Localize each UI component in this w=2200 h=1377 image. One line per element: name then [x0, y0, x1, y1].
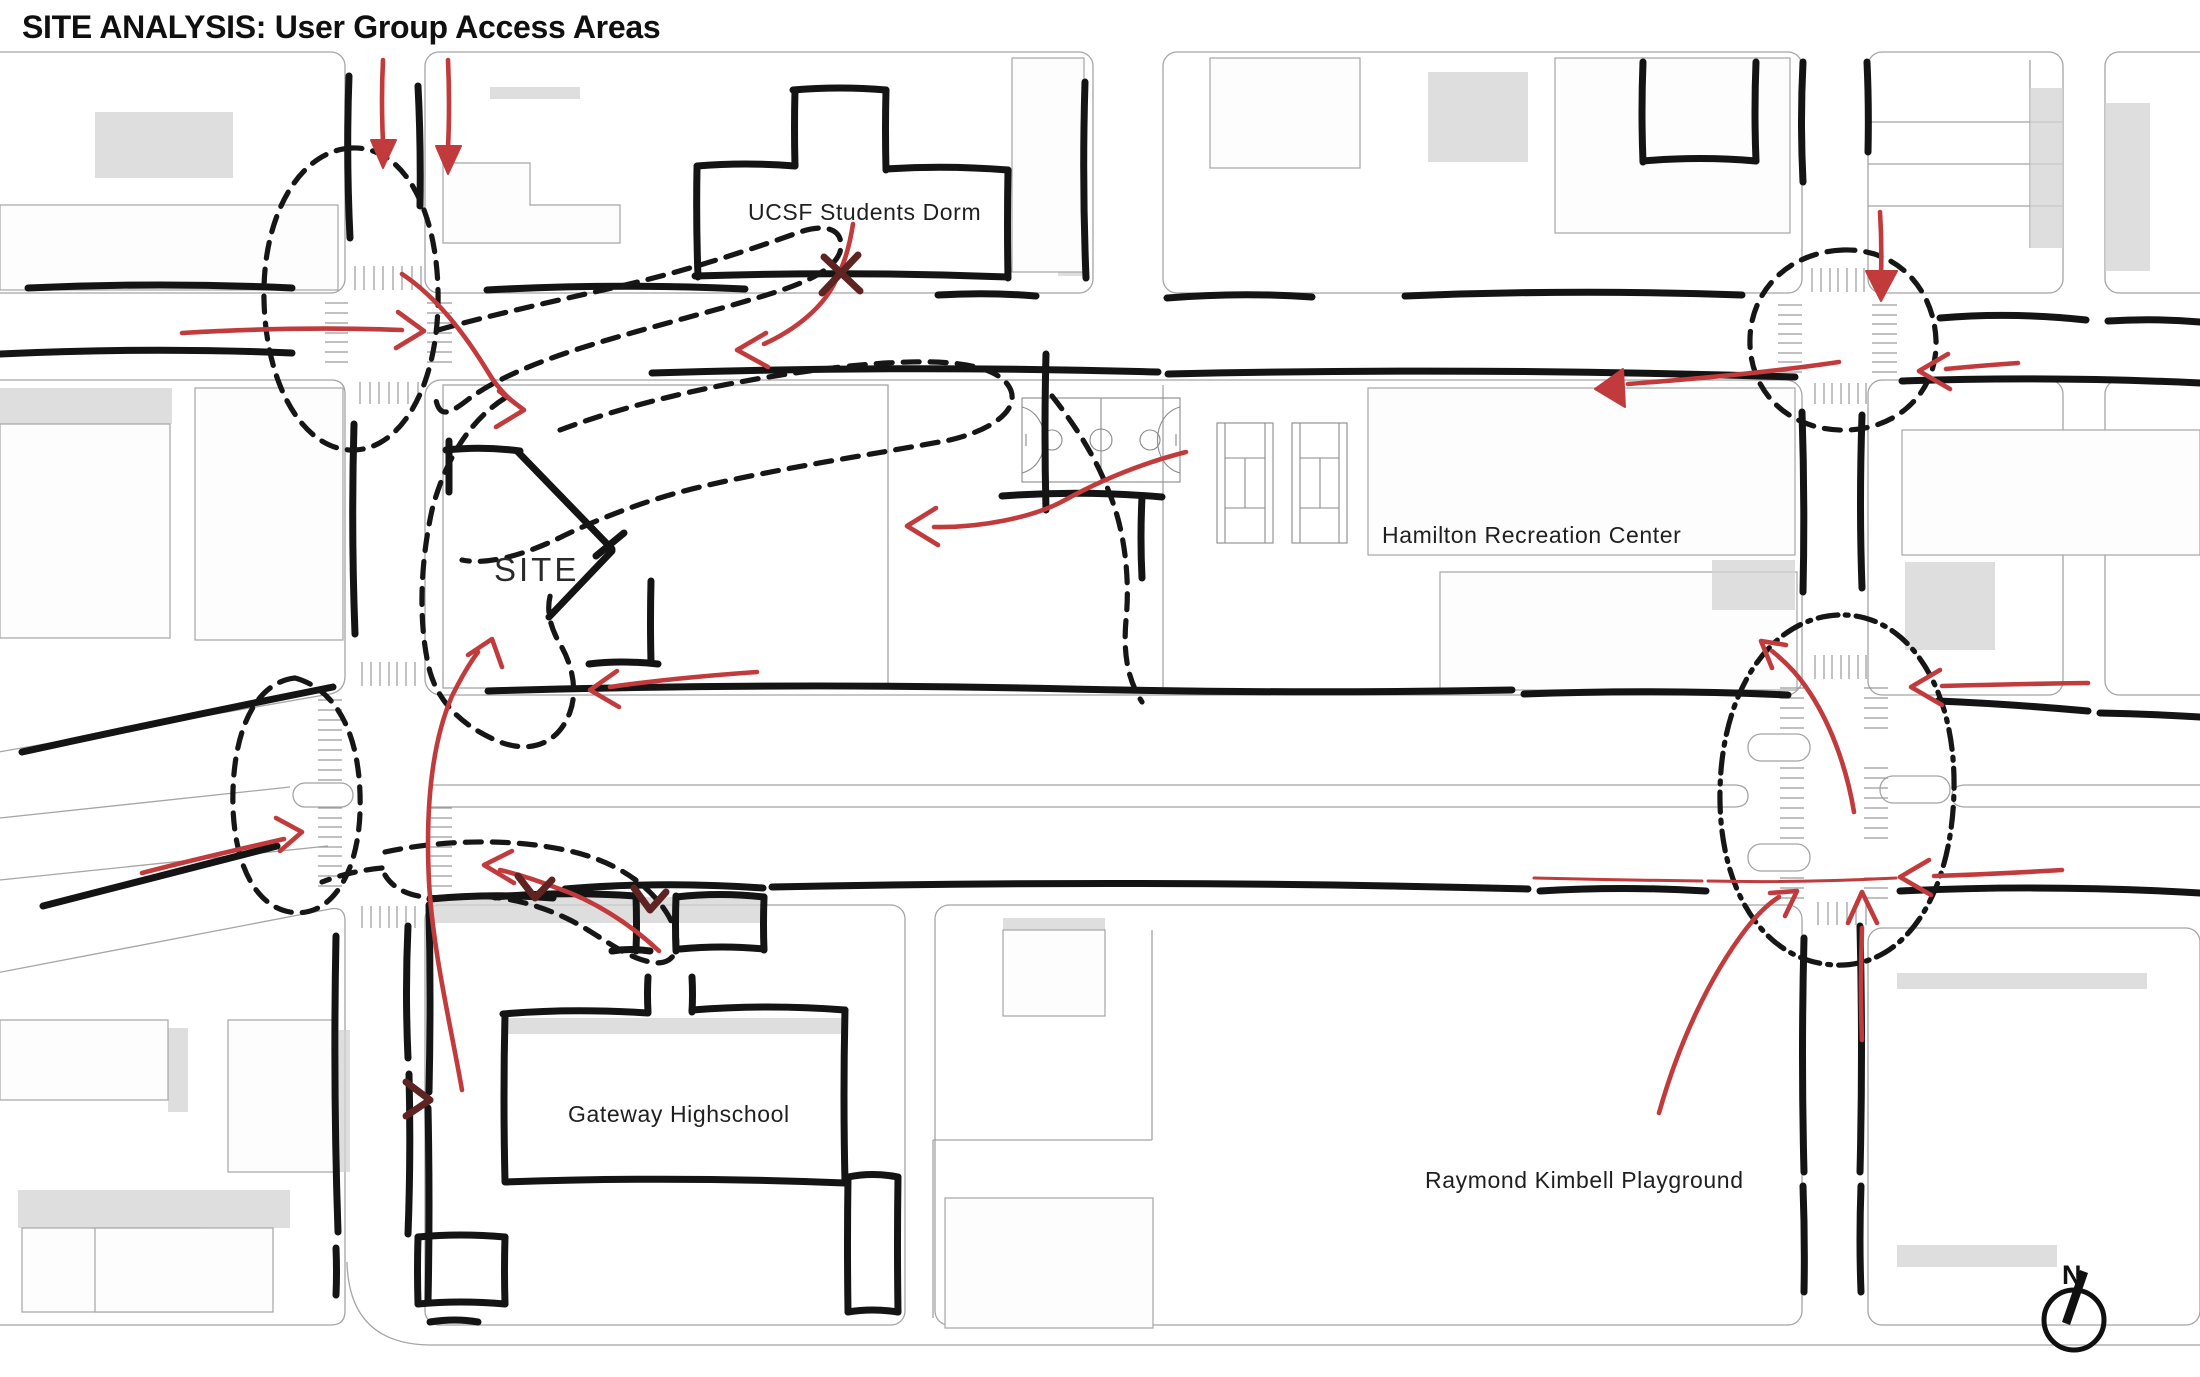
compass-north-label: N [2062, 1260, 2082, 1290]
label-raymond-kimbell-playground: Raymond Kimbell Playground [1425, 1167, 1744, 1193]
label-ucsf-dorm: UCSF Students Dorm [748, 199, 981, 225]
label-gateway-highschool: Gateway Highschool [568, 1101, 790, 1127]
arrow-west-inflow [182, 312, 424, 348]
site-analysis-map: UCSF Students Dorm Hamilton Recreation C… [0, 0, 2200, 1377]
page-title: SITE ANALYSIS: User Group Access Areas [22, 9, 660, 45]
label-hamilton-recreation-center: Hamilton Recreation Center [1382, 522, 1681, 548]
label-site: SITE [494, 551, 579, 588]
